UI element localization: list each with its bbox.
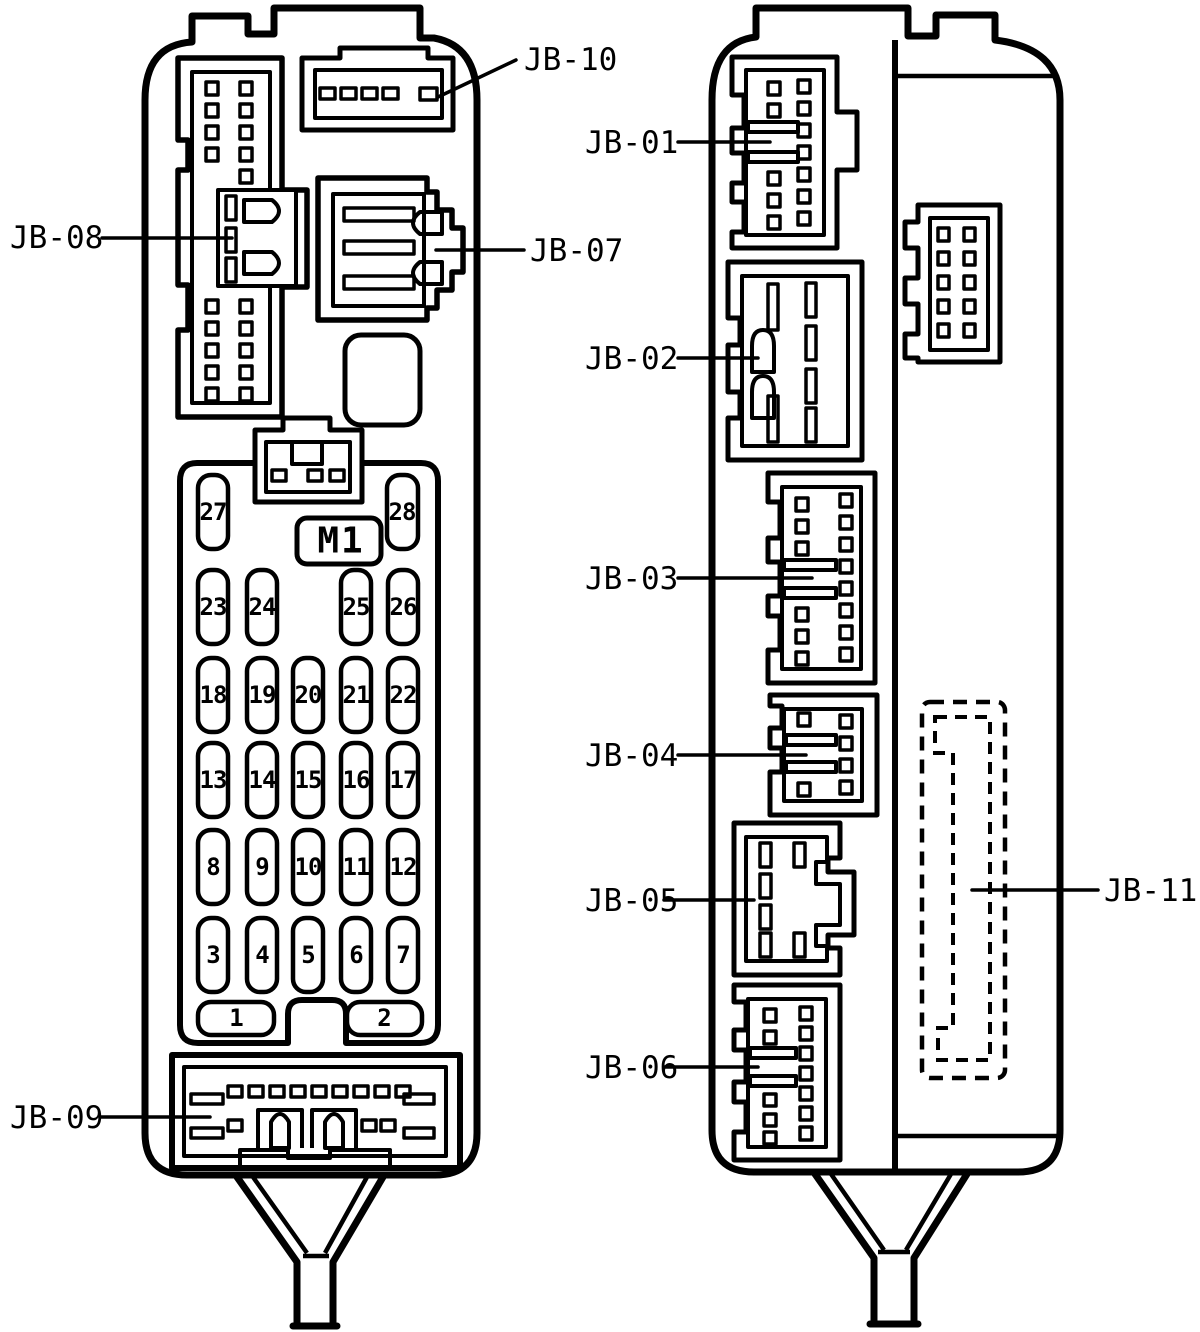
relay-label-m1: M1 <box>317 521 364 562</box>
fuse-number-17: 17 <box>390 766 417 794</box>
jb-08-label: JB-08 <box>10 220 103 256</box>
jb-06-connector <box>734 985 840 1160</box>
fuse-number-5: 5 <box>301 941 314 969</box>
fuse-number-4: 4 <box>255 941 269 969</box>
blank-slot <box>345 335 420 425</box>
fuse-number-2: 2 <box>377 1004 390 1032</box>
jb-06-inner <box>748 999 826 1147</box>
right-funnel-outer <box>815 1174 967 1324</box>
right-funnel-inner <box>831 1174 951 1252</box>
jb-10-label: JB-10 <box>524 42 617 78</box>
fuse-number-8: 8 <box>206 853 219 881</box>
fuse-box-diagram: 27 28 M1 23 24 25 26 18 19 20 21 22 <box>0 0 1200 1332</box>
jb-04-label: JB-04 <box>585 738 678 774</box>
fuse-number-11: 11 <box>343 853 370 881</box>
jb-02-label: JB-02 <box>585 341 678 377</box>
jb-05-slot-array <box>760 843 805 957</box>
fuse-number-12: 12 <box>390 853 417 881</box>
side-panel-connector <box>905 205 1000 362</box>
side-panel-connector-outline <box>905 205 1000 362</box>
jb-10-connector <box>302 48 453 130</box>
fuse-number-25: 25 <box>343 593 370 621</box>
left-funnel-inner <box>253 1177 367 1256</box>
jb-09-label: JB-09 <box>10 1100 103 1136</box>
right-unit-side-view: JB-01 JB-02 JB-03 JB-04 JB-05 JB-06 JB-1… <box>585 8 1197 1324</box>
jb-02-inner <box>742 276 848 446</box>
jb-01-label: JB-01 <box>585 125 678 161</box>
jb-07-slot-array <box>344 208 414 289</box>
jb-09-pin-row <box>228 1086 410 1097</box>
jb-01-connector <box>732 57 857 248</box>
jb-05-label: JB-05 <box>585 883 678 919</box>
fuse-number-16: 16 <box>343 766 370 794</box>
fuse-number-23: 23 <box>200 593 227 621</box>
fuse-number-19: 19 <box>249 681 276 709</box>
fuse-number-28: 28 <box>389 498 416 526</box>
panel-top-connector <box>255 418 362 502</box>
fuse-number-6: 6 <box>349 941 363 969</box>
jb-02-connector <box>728 262 862 460</box>
jb-07-lock-tabs <box>413 212 442 284</box>
fuse-number-22: 22 <box>390 681 417 709</box>
fuse-number-21: 21 <box>343 681 370 709</box>
right-mount-funnel <box>815 1174 967 1324</box>
fuse-number-9: 9 <box>255 853 268 881</box>
fuse-number-14: 14 <box>249 766 276 794</box>
jb-07-label: JB-07 <box>530 233 623 269</box>
fuse-number-15: 15 <box>295 766 322 794</box>
left-unit-front-view: 27 28 M1 23 24 25 26 18 19 20 21 22 <box>10 8 623 1326</box>
fuse-number-20: 20 <box>295 681 322 709</box>
left-funnel-outer <box>237 1177 383 1326</box>
jb-11-label: JB-11 <box>1104 873 1197 909</box>
jb-03-label: JB-03 <box>585 561 678 597</box>
fuse-number-24: 24 <box>249 593 276 621</box>
fuse-number-27: 27 <box>200 498 227 526</box>
fuse-panel: 27 28 M1 23 24 25 26 18 19 20 21 22 <box>180 418 438 1043</box>
fuse-number-13: 13 <box>200 766 227 794</box>
jb-02-outline <box>728 262 862 460</box>
fuse-number-26: 26 <box>390 593 417 621</box>
panel-top-connector-outline <box>255 418 362 502</box>
jb-10-pin-array <box>320 88 437 100</box>
jb-01-pin-array <box>768 80 810 229</box>
jb-09-bulb-left <box>271 1114 289 1148</box>
jb-09-bulb-right <box>325 1114 343 1148</box>
jb-06-label: JB-06 <box>585 1050 678 1086</box>
fuse-number-1: 1 <box>229 1004 243 1032</box>
fuse-number-7: 7 <box>396 941 409 969</box>
fuse-number-18: 18 <box>200 681 227 709</box>
fuse-box-diagram-page: 27 28 M1 23 24 25 26 18 19 20 21 22 <box>0 0 1200 1332</box>
jb-09-connector <box>172 1055 460 1168</box>
side-panel-connector-pins <box>938 228 975 337</box>
left-mount-funnel <box>237 1177 383 1326</box>
fuse-number-3: 3 <box>206 941 219 969</box>
fuse-number-10: 10 <box>295 853 322 881</box>
jb-02-lock-tabs <box>752 330 774 418</box>
